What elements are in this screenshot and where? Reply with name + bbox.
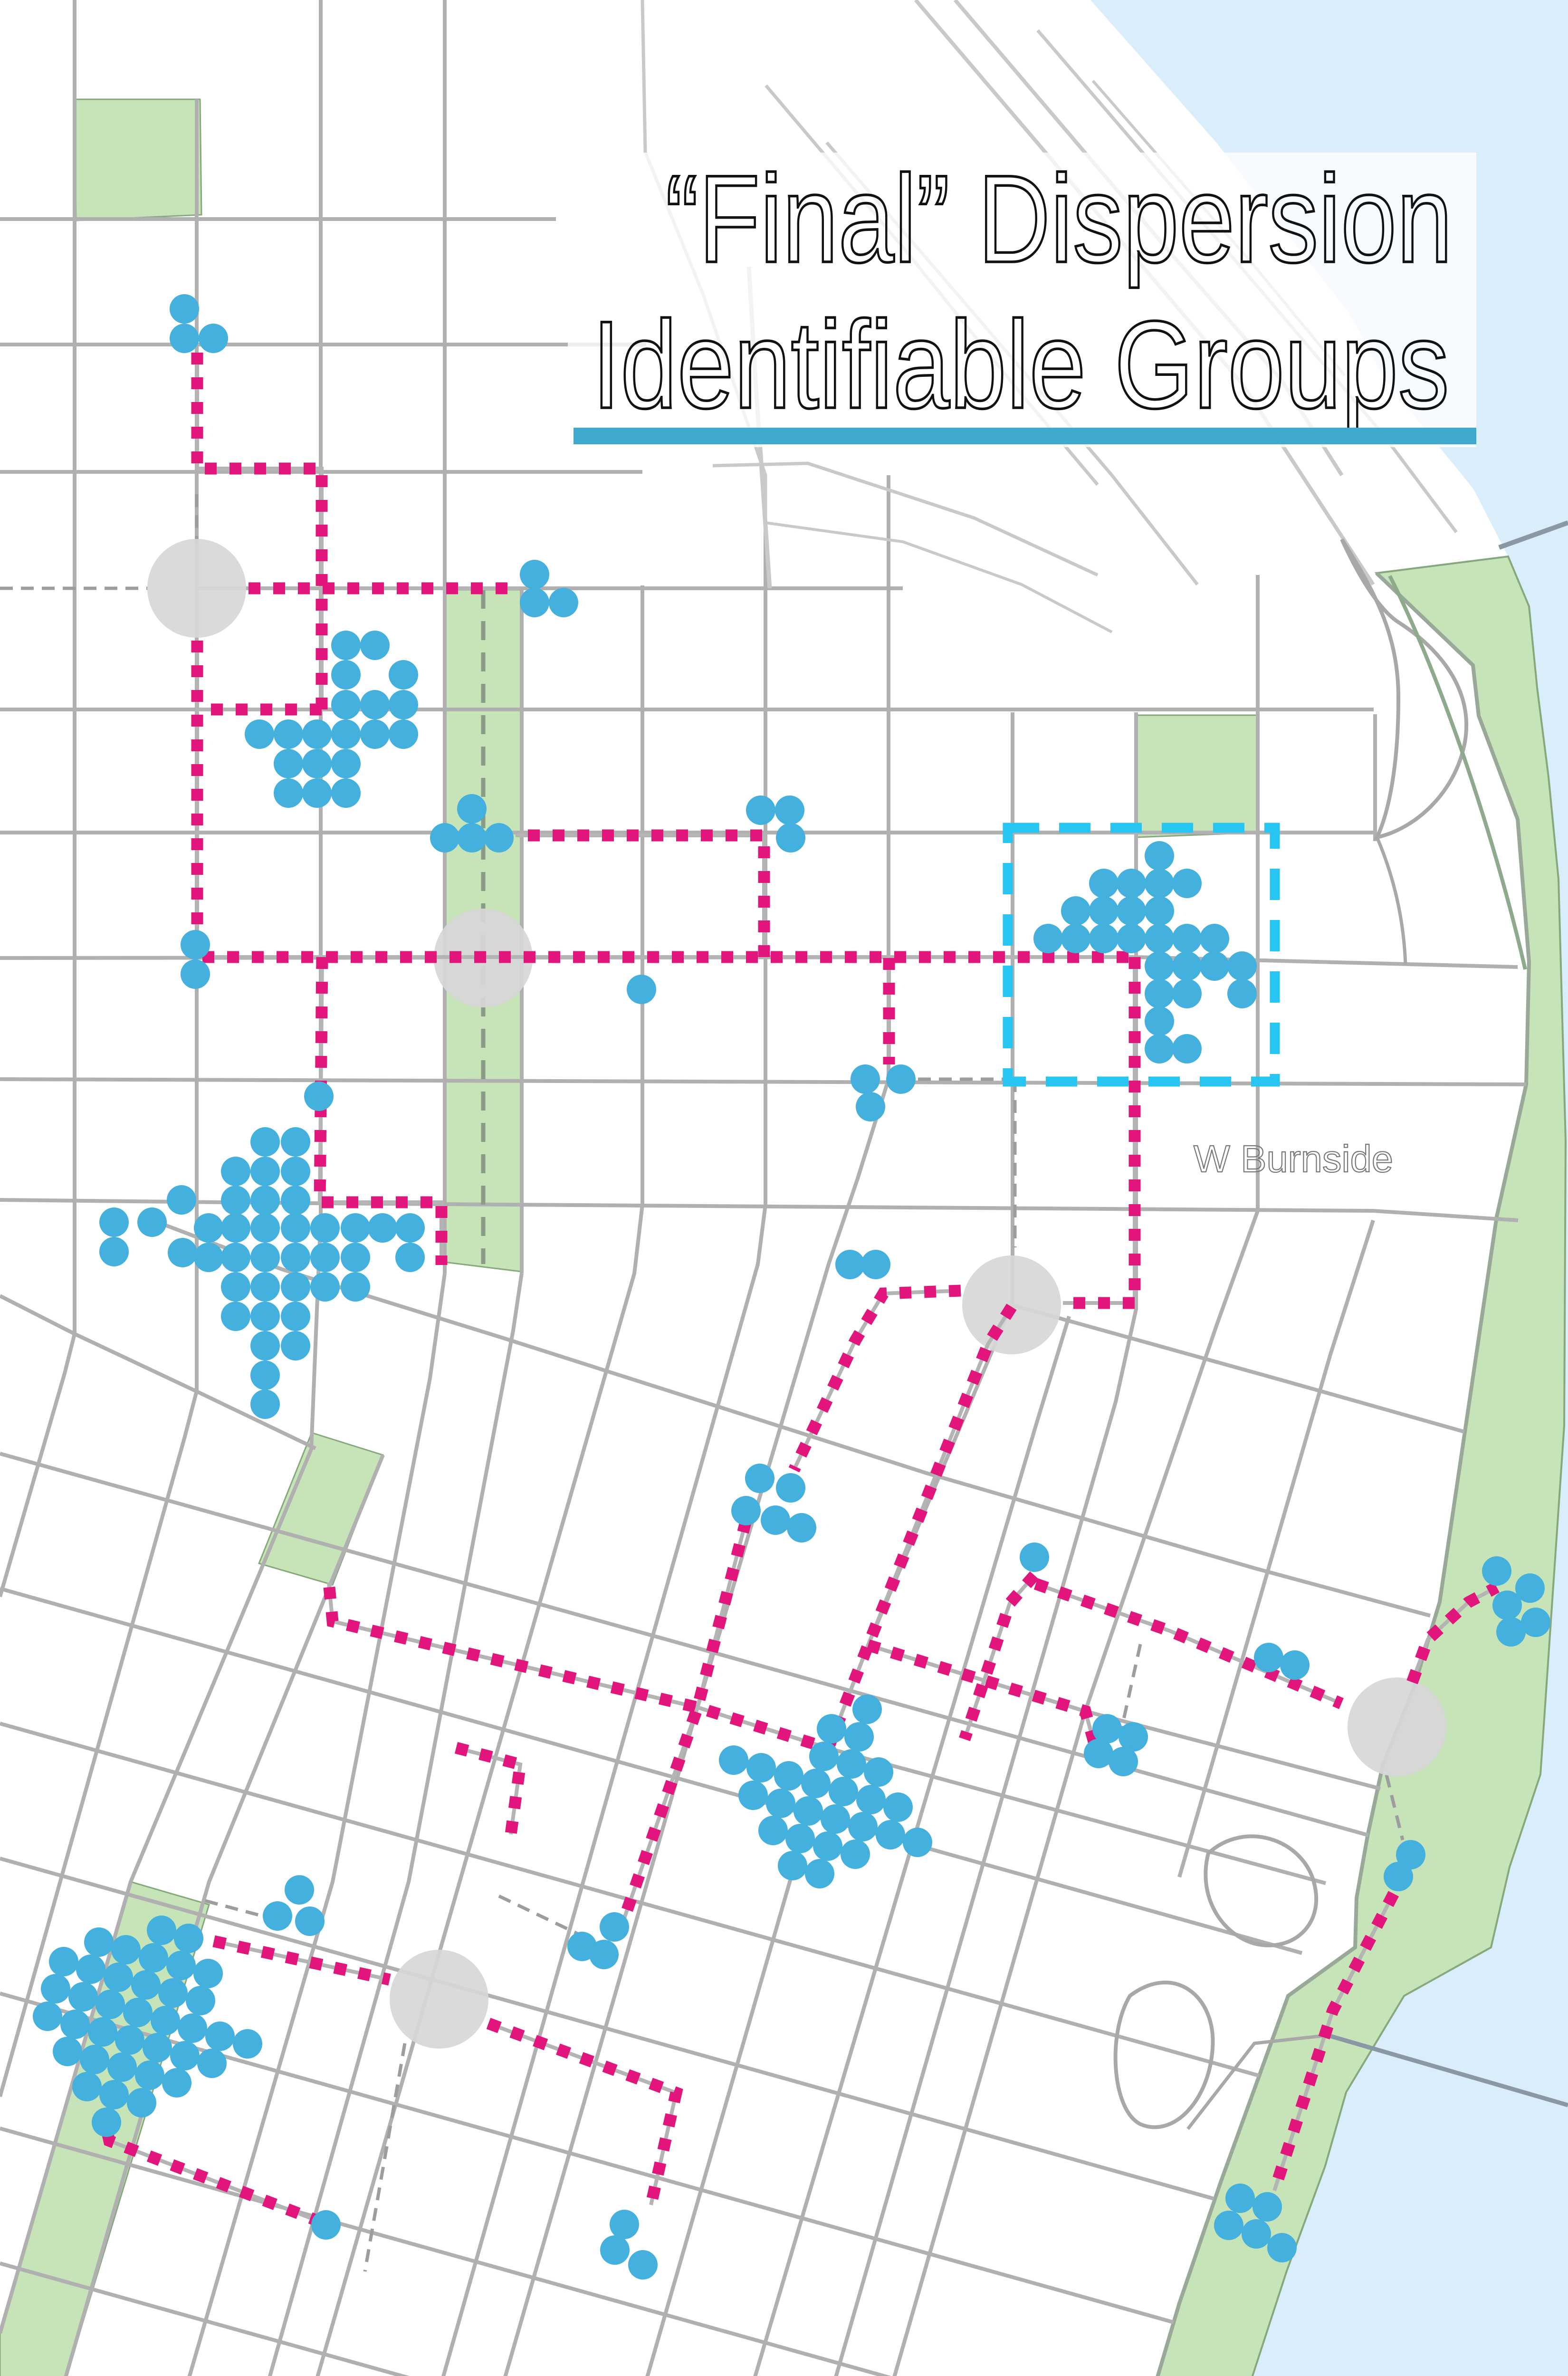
svg-text:“Final” Dispersion: “Final” Dispersion bbox=[665, 149, 1453, 289]
svg-text:W Burnside: W Burnside bbox=[1194, 1138, 1393, 1180]
svg-text:Identifiable Groups: Identifiable Groups bbox=[592, 295, 1449, 435]
